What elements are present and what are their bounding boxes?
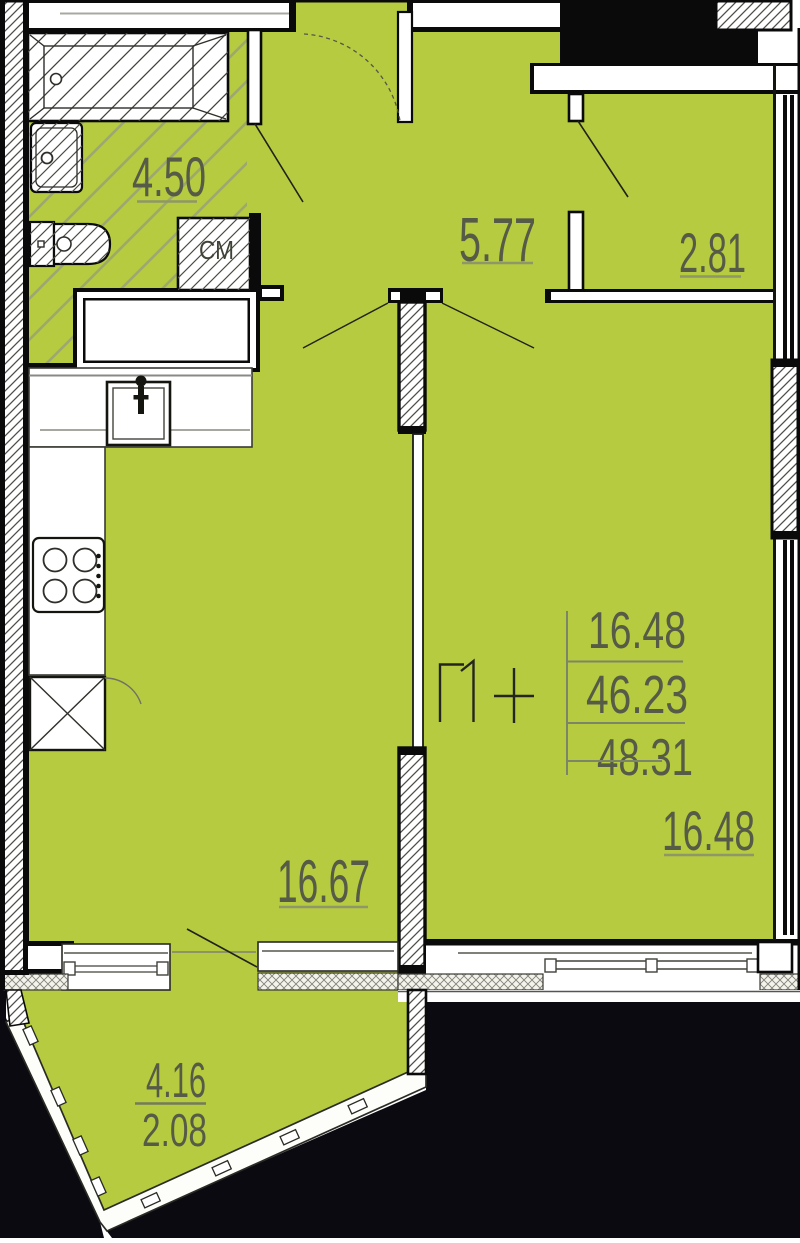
svg-text:16.48: 16.48	[588, 602, 686, 660]
svg-text:4.16: 4.16	[146, 1054, 206, 1108]
svg-text:5.77: 5.77	[459, 206, 536, 275]
svg-text:2.08: 2.08	[142, 1104, 207, 1156]
svg-text:2.81: 2.81	[679, 221, 746, 284]
svg-text:16.67: 16.67	[277, 848, 370, 915]
svg-text:4.50: 4.50	[132, 145, 206, 208]
svg-text:16.48: 16.48	[662, 799, 755, 862]
svg-text:46.23: 46.23	[586, 665, 688, 725]
svg-text:48.31: 48.31	[597, 729, 693, 787]
svg-text:СМ: СМ	[199, 235, 234, 265]
